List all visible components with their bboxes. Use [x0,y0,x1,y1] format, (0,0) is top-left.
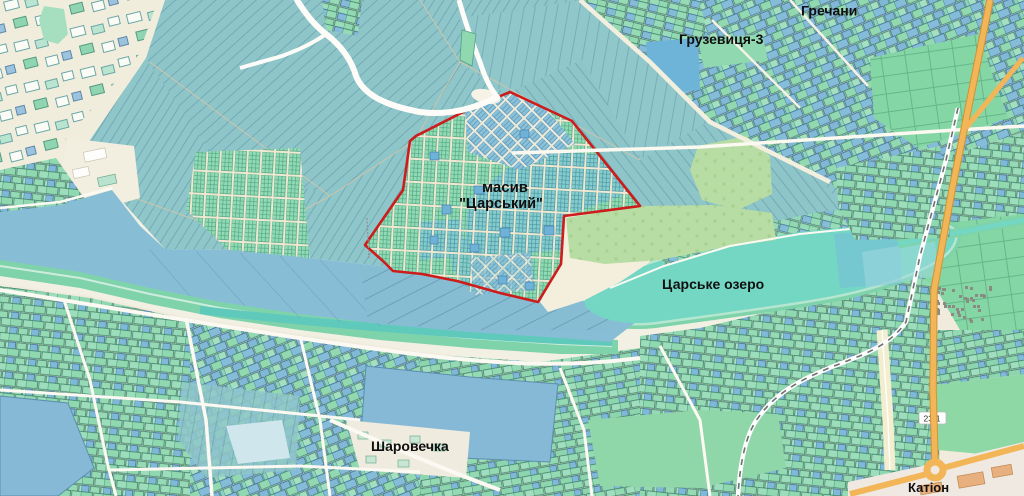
svg-text:Грузевиця-3: Грузевиця-3 [679,31,764,47]
svg-text:масив: масив [482,179,528,196]
svg-text:Катіон: Катіон [908,480,949,495]
svg-text:"Царський": "Царський" [459,196,543,212]
svg-text:Гречани: Гречани [801,3,857,19]
svg-text:Царське озеро: Царське озеро [662,276,764,292]
svg-text:Шаровечка: Шаровечка [371,438,449,454]
